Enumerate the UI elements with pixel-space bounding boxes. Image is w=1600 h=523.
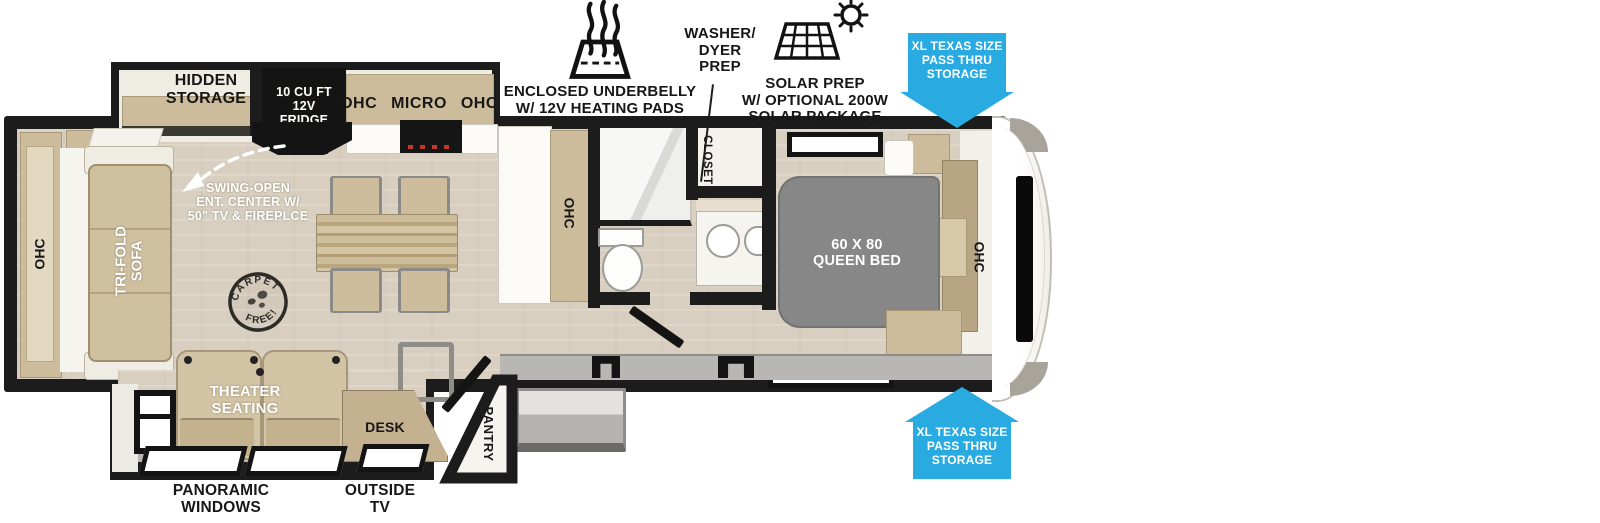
kitchen-ohc-label: OHC MICRO OHC	[340, 95, 498, 113]
swing-open-label: SWING-OPEN ENT. CENTER W/ 50" TV & FIREP…	[180, 182, 316, 223]
galley-counter	[498, 126, 552, 304]
slideout-side-window	[134, 390, 176, 454]
vanity-sink	[706, 224, 740, 258]
dinette-chair	[330, 268, 382, 313]
bathroom-left-wall	[588, 118, 600, 308]
bathroom-bottom-wall-a	[588, 292, 650, 305]
bedroom-wall	[762, 118, 776, 310]
panoramic-window	[244, 446, 347, 476]
slideout-side-window-bar	[140, 414, 170, 419]
panoramic-window	[138, 446, 247, 476]
cooktop-knobs	[408, 145, 454, 149]
fridge-label: 10 CU FT 12V FRIDGE	[263, 86, 345, 127]
cupholder	[184, 356, 192, 364]
solar-prep-label: SOLAR PREP W/ OPTIONAL 200W SOLAR PACKAG…	[733, 76, 897, 126]
rv-floorplan: HIDDEN STORAGE 10 CU FT 12V FRIDGE OHC M…	[0, 0, 1600, 523]
solar-prep-icon	[772, 0, 872, 74]
shower	[600, 128, 692, 226]
cupholder	[250, 356, 258, 364]
theater-seating-label: THEATER SEATING	[192, 384, 298, 417]
hidden-storage-label: HIDDEN STORAGE	[156, 72, 256, 107]
entry-step	[516, 388, 626, 452]
pass-thru-storage-arrow-top: XL TEXAS SIZE PASS THRU STORAGE	[900, 33, 1014, 128]
sofa-ohc-label: OHC	[33, 238, 48, 269]
desk-label: DESK	[358, 420, 412, 435]
cupholder	[332, 356, 340, 364]
bed-ohc-label: OHC	[972, 241, 987, 272]
dinette-chair	[398, 268, 450, 313]
dinette-table	[316, 214, 458, 272]
outside-tv-label: OUTSIDE TV	[330, 482, 430, 516]
bed-pillow	[884, 140, 914, 176]
bedroom-top-window	[787, 132, 883, 157]
vanity-counter-edge	[696, 200, 762, 212]
toilet-bowl	[602, 244, 643, 292]
underbelly-label: ENCLOSED UNDERBELLY W/ 12V HEATING PADS	[500, 84, 700, 117]
queen-bed-label: 60 X 80 QUEEN BED	[792, 238, 922, 270]
sofa-back-panel	[60, 148, 88, 372]
washer-dryer-label: WASHER/ DYER PREP	[672, 26, 768, 76]
panoramic-windows-label: PANORAMIC WINDOWS	[146, 482, 296, 516]
pantry-label: PANTRY	[481, 407, 495, 462]
tri-fold-sofa-label: TRI-FOLD SOFA	[113, 226, 145, 296]
galley-ohc-label: OHC	[562, 197, 577, 228]
heating-pads-icon	[552, 0, 648, 86]
cupholder	[256, 368, 264, 376]
closet-wall-bottom	[686, 186, 764, 198]
front-window	[1016, 176, 1033, 342]
outside-tv-frame	[357, 444, 430, 472]
